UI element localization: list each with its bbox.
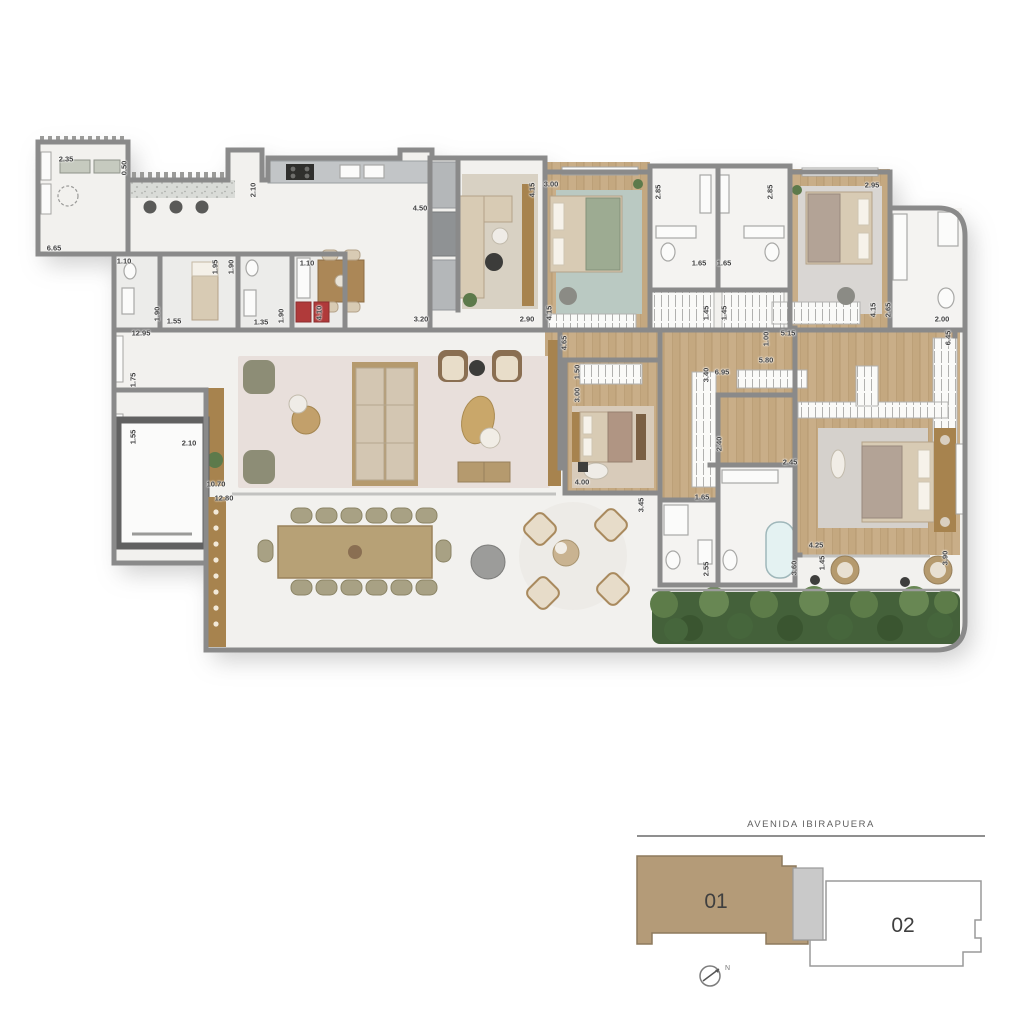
dimension-label: 2.85 bbox=[654, 185, 663, 200]
washer-icon bbox=[296, 302, 311, 322]
dimension-label: 4.15 bbox=[545, 306, 554, 321]
side-table bbox=[810, 575, 820, 585]
north-label: N bbox=[725, 965, 730, 972]
dimension-label: 1.55 bbox=[167, 317, 182, 326]
dimension-label: 12.80 bbox=[215, 494, 234, 503]
dimension-label: 4.25 bbox=[809, 541, 824, 550]
unit-02-label: 02 bbox=[891, 914, 914, 937]
double-sofa bbox=[386, 368, 414, 480]
toilet-icon bbox=[723, 550, 737, 570]
dimension-label: 1.50 bbox=[573, 365, 582, 380]
dimension-label: 4.15 bbox=[528, 183, 537, 198]
dimension-label: 2.90 bbox=[520, 315, 535, 324]
floor-plan-page: AVENIDA IBIRAPUERA 01 02 N 2.350.506.652… bbox=[0, 0, 1024, 1024]
core-shape bbox=[793, 868, 823, 940]
toilet-icon bbox=[246, 260, 258, 276]
shower-icon bbox=[664, 505, 688, 535]
centerpiece bbox=[348, 545, 362, 559]
dimension-label: 1.55 bbox=[129, 430, 138, 445]
dimension-label: 2.65 bbox=[884, 303, 893, 318]
pouf bbox=[485, 253, 503, 271]
dimension-label: 2.45 bbox=[783, 458, 798, 467]
vanity-icon bbox=[744, 226, 784, 238]
dimension-label: 12.95 bbox=[132, 329, 151, 338]
floor-plan-svg: AVENIDA IBIRAPUERA 01 02 N bbox=[0, 0, 1024, 1024]
dimension-label: 4.50 bbox=[413, 204, 428, 213]
tall-cabinet bbox=[432, 162, 458, 208]
north-arrow-icon: N bbox=[700, 965, 730, 986]
round-table bbox=[289, 395, 307, 413]
tv-panel bbox=[522, 184, 534, 306]
armchair bbox=[243, 360, 275, 394]
dimension-label: 10.70 bbox=[207, 480, 226, 489]
dimension-label: 1.00 bbox=[762, 332, 771, 347]
bar-stool bbox=[196, 201, 209, 214]
fire-pit bbox=[471, 545, 505, 579]
dimension-label: 1.45 bbox=[818, 556, 827, 571]
double-sofa bbox=[356, 368, 384, 480]
vanity-icon bbox=[893, 214, 907, 280]
dimension-label: 3.60 bbox=[790, 561, 799, 576]
toilet-icon bbox=[938, 288, 954, 308]
dimension-label: 3.00 bbox=[544, 180, 559, 189]
bar-stool bbox=[170, 201, 183, 214]
street-label: AVENIDA IBIRAPUERA bbox=[747, 819, 875, 830]
dimension-label: 0.50 bbox=[120, 161, 129, 176]
bar-counter-top bbox=[128, 180, 235, 198]
dimension-label: 2.10 bbox=[182, 439, 197, 448]
planter-box bbox=[94, 160, 120, 173]
dimension-label: 3.00 bbox=[573, 388, 582, 403]
armchair bbox=[243, 450, 275, 484]
bed-blanket bbox=[586, 198, 620, 270]
tall-cabinet bbox=[432, 260, 458, 310]
key-plan: AVENIDA IBIRAPUERA 01 02 N bbox=[637, 819, 985, 986]
dimension-label: 5.15 bbox=[781, 329, 796, 338]
toilet-icon bbox=[666, 551, 680, 569]
bar-stool bbox=[144, 201, 157, 214]
side-table bbox=[900, 577, 910, 587]
dimension-label: 1.35 bbox=[254, 318, 269, 327]
den-sofa bbox=[460, 196, 484, 298]
stove-icon bbox=[286, 164, 314, 180]
dimension-label: 1.45 bbox=[702, 306, 711, 321]
vanity-icon bbox=[722, 470, 778, 483]
dimension-label: 2.00 bbox=[935, 315, 950, 324]
dimension-label: 1.95 bbox=[211, 260, 220, 275]
side-table bbox=[492, 228, 508, 244]
sink-icon bbox=[340, 165, 360, 178]
dimension-label: 3.40 bbox=[702, 368, 711, 383]
dimension-label: 1.45 bbox=[720, 306, 729, 321]
dimension-label: 2.35 bbox=[59, 155, 74, 164]
dimension-label: 6.95 bbox=[715, 368, 730, 377]
side-table bbox=[480, 428, 500, 448]
dimension-label: 4.65 bbox=[560, 336, 569, 351]
dimension-label: 6.65 bbox=[47, 244, 62, 253]
unit-01-label: 01 bbox=[704, 890, 727, 913]
wall-art bbox=[578, 462, 588, 472]
shower-icon bbox=[938, 212, 958, 246]
dimension-label: 1.65 bbox=[692, 259, 707, 268]
dimension-label: 1.10 bbox=[117, 257, 132, 266]
dimension-label: 3.90 bbox=[941, 551, 950, 566]
dimension-label: 1.75 bbox=[129, 373, 138, 388]
pouf bbox=[469, 360, 485, 376]
dimension-label: 2.95 bbox=[865, 181, 880, 190]
dimension-label: 4.10 bbox=[315, 306, 324, 321]
dimension-label: 1.65 bbox=[717, 259, 732, 268]
dimension-label: 4.00 bbox=[575, 478, 590, 487]
dimension-label: 2.10 bbox=[249, 183, 258, 198]
bench bbox=[636, 414, 646, 460]
dimension-label: 1.90 bbox=[277, 309, 286, 324]
plant-icon bbox=[633, 179, 643, 189]
bed-blanket bbox=[808, 194, 840, 262]
dimension-label: 6.45 bbox=[944, 331, 953, 346]
dimension-label: 5.80 bbox=[759, 356, 774, 365]
plant-icon bbox=[463, 293, 477, 307]
dimension-label: 3.45 bbox=[637, 498, 646, 513]
toilet-icon bbox=[765, 243, 779, 261]
dimension-label: 2.85 bbox=[766, 185, 775, 200]
dimension-label: 1.10 bbox=[300, 259, 315, 268]
vanity-icon bbox=[656, 226, 696, 238]
desk-chair bbox=[559, 287, 577, 305]
desk-chair bbox=[837, 287, 855, 305]
toilet-icon bbox=[661, 243, 675, 261]
suite-access-floor bbox=[718, 393, 795, 465]
dimension-label: 4.15 bbox=[869, 303, 878, 318]
sink-icon bbox=[364, 165, 384, 178]
bed-blanket bbox=[608, 412, 632, 462]
dimension-label: 1.65 bbox=[695, 493, 710, 502]
dimension-label: 1.90 bbox=[153, 307, 162, 322]
dimension-label: 1.90 bbox=[227, 260, 236, 275]
hedge bbox=[650, 586, 960, 644]
shower-icon bbox=[122, 288, 134, 314]
plant-icon bbox=[792, 185, 802, 195]
dimension-label: 2.55 bbox=[702, 562, 711, 577]
shower-icon bbox=[244, 290, 256, 316]
tall-cabinet bbox=[432, 212, 458, 256]
bed-blanket bbox=[862, 446, 902, 518]
dimension-label: 2.40 bbox=[715, 437, 724, 452]
chaise bbox=[831, 450, 845, 478]
dimension-label: 3.20 bbox=[414, 315, 429, 324]
headboard bbox=[572, 412, 580, 462]
